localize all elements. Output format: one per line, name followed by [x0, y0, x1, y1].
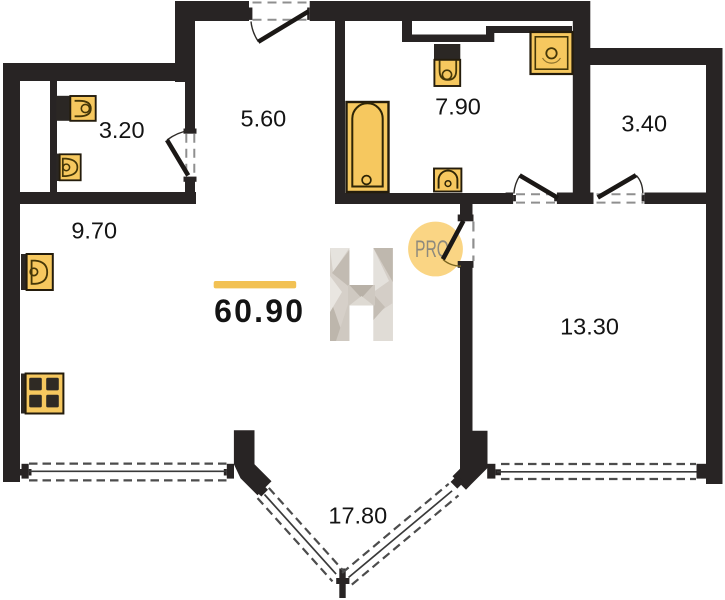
- svg-text:3.20: 3.20: [99, 117, 145, 143]
- svg-text:17.80: 17.80: [328, 503, 387, 529]
- svg-text:5.60: 5.60: [241, 106, 287, 132]
- svg-text:9.70: 9.70: [71, 218, 117, 244]
- svg-text:60.90: 60.90: [214, 293, 305, 329]
- svg-text:3.40: 3.40: [621, 111, 667, 137]
- svg-text:13.30: 13.30: [560, 314, 619, 340]
- svg-text:7.90: 7.90: [435, 94, 481, 120]
